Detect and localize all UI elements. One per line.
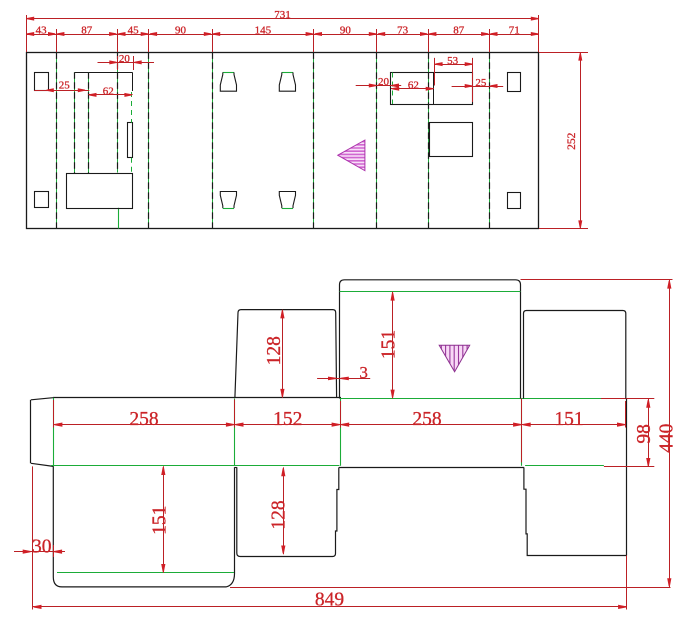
svg-text:20: 20: [378, 76, 390, 88]
svg-text:62: 62: [408, 80, 419, 92]
svg-text:151: 151: [378, 330, 399, 359]
svg-text:252: 252: [566, 132, 578, 150]
svg-text:45: 45: [128, 25, 140, 37]
svg-text:151: 151: [554, 409, 583, 430]
svg-text:849: 849: [315, 590, 344, 611]
svg-text:128: 128: [264, 336, 285, 365]
svg-text:62: 62: [103, 86, 114, 98]
svg-text:90: 90: [175, 25, 187, 37]
svg-text:73: 73: [397, 25, 409, 37]
svg-text:258: 258: [129, 409, 158, 430]
svg-text:440: 440: [656, 424, 677, 453]
svg-text:43: 43: [36, 25, 48, 37]
svg-text:25: 25: [59, 80, 71, 92]
svg-text:87: 87: [453, 25, 465, 37]
svg-text:128: 128: [268, 500, 289, 529]
svg-text:152: 152: [273, 409, 302, 430]
svg-text:151: 151: [149, 506, 170, 535]
svg-text:3: 3: [359, 363, 368, 382]
svg-text:98: 98: [634, 424, 655, 444]
svg-text:25: 25: [475, 77, 487, 89]
svg-text:731: 731: [274, 9, 291, 21]
svg-text:145: 145: [255, 25, 272, 37]
svg-text:20: 20: [119, 53, 131, 65]
svg-text:71: 71: [509, 25, 520, 37]
svg-text:53: 53: [447, 55, 459, 67]
svg-text:30: 30: [32, 536, 52, 557]
svg-text:87: 87: [81, 25, 93, 37]
svg-text:258: 258: [412, 409, 441, 430]
svg-text:90: 90: [340, 25, 352, 37]
